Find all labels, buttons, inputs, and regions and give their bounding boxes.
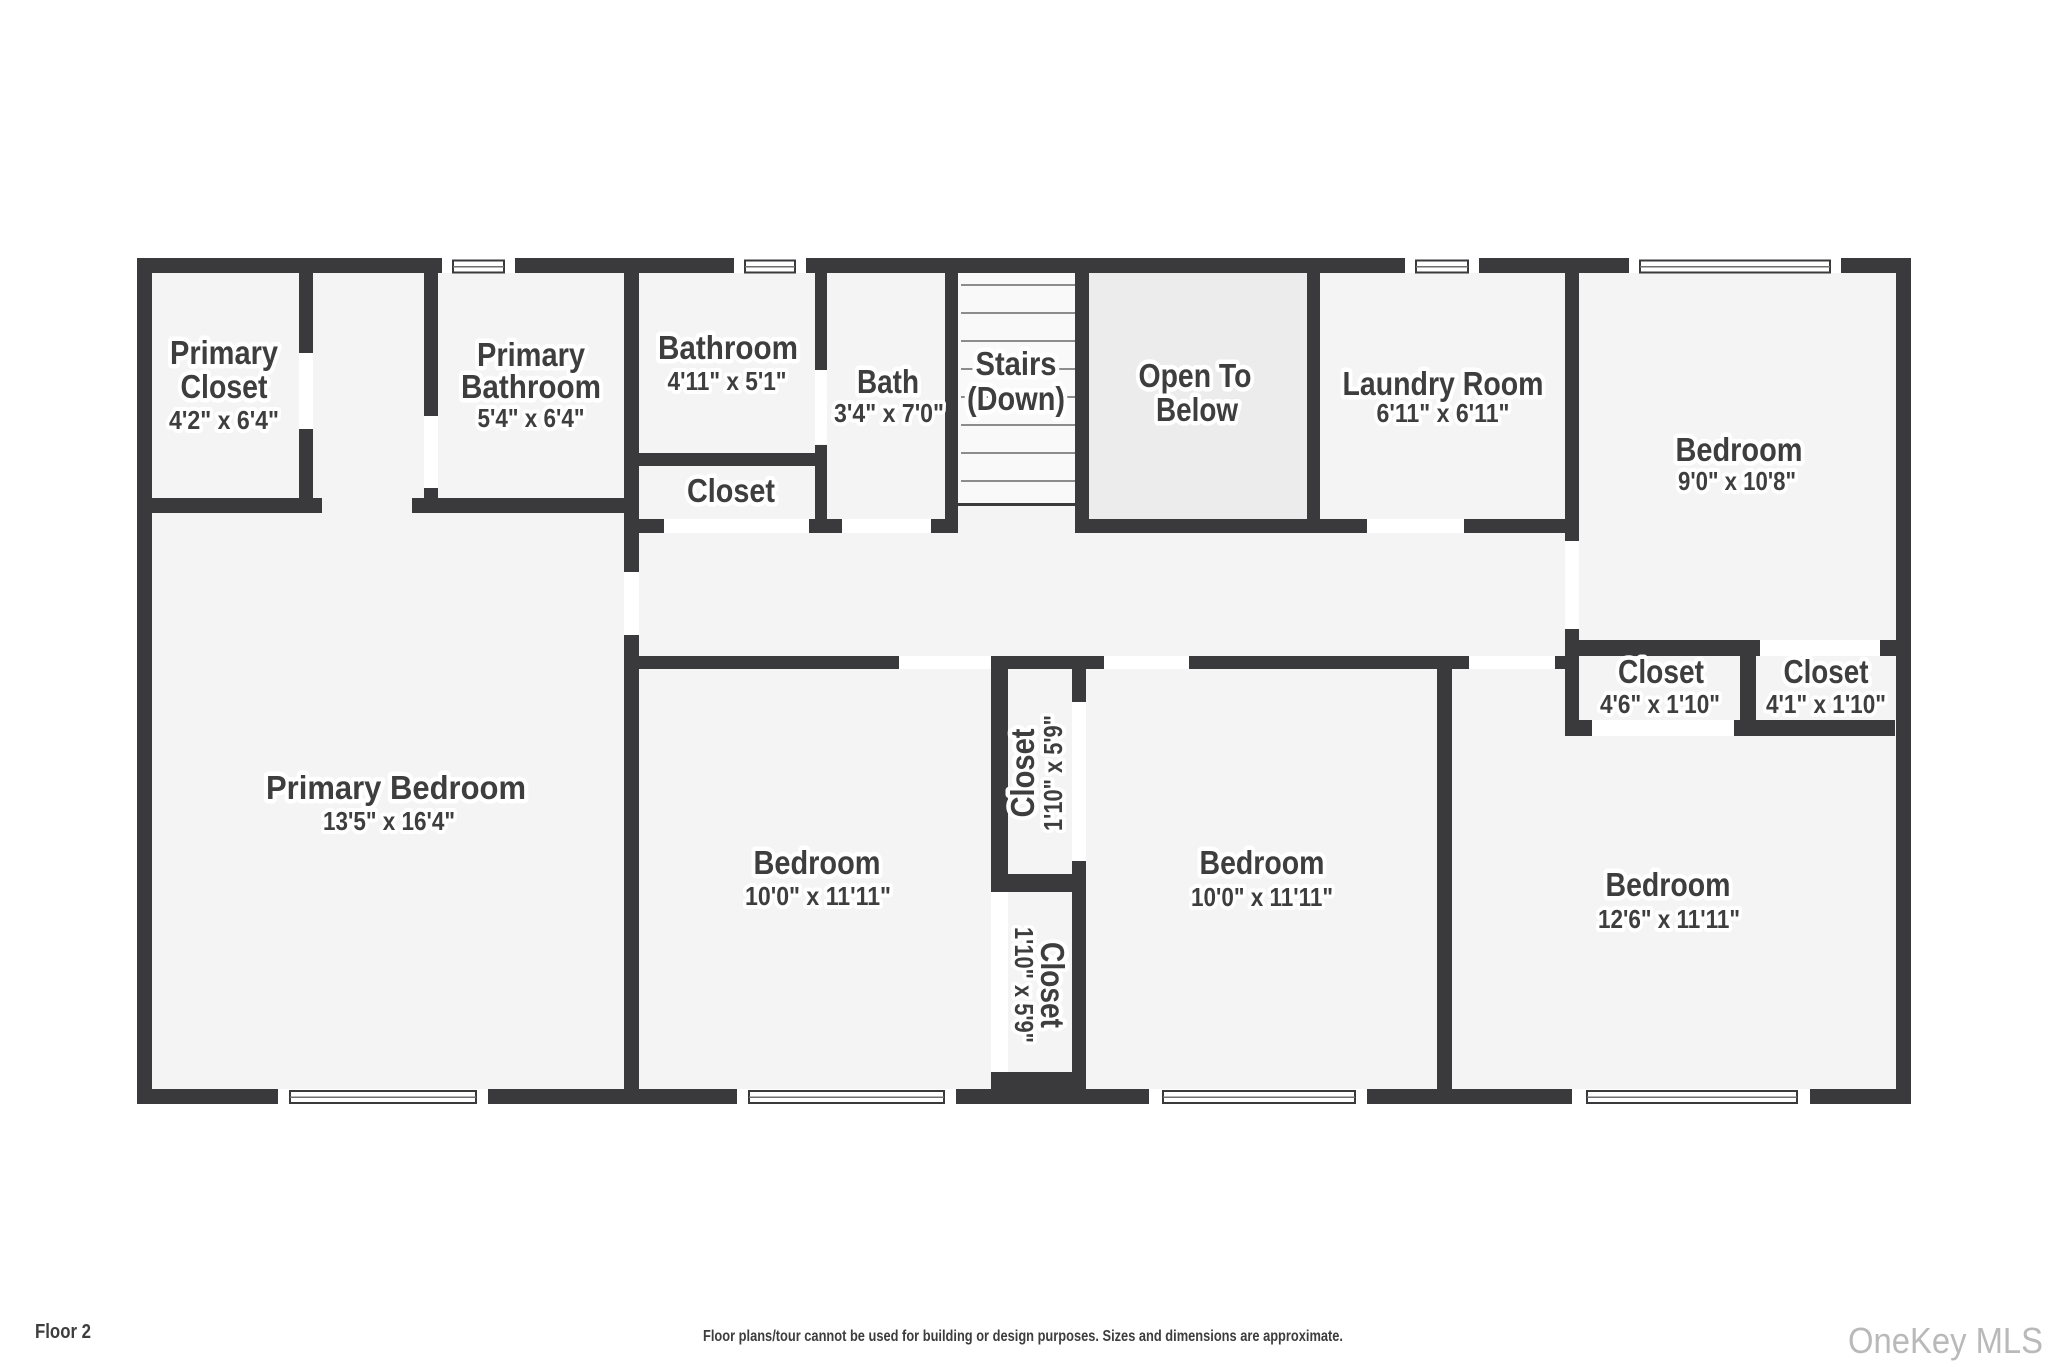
svg-text:4'6" x 1'10": 4'6" x 1'10" — [1600, 689, 1720, 719]
svg-text:10'0" x 11'11": 10'0" x 11'11" — [1191, 882, 1333, 912]
svg-text:13'5" x 16'4": 13'5" x 16'4" — [323, 806, 455, 836]
svg-text:Closet: Closet — [181, 368, 268, 405]
svg-text:Bedroom: Bedroom — [1200, 844, 1325, 881]
svg-text:Floor 2: Floor 2 — [35, 1321, 91, 1343]
svg-text:Below: Below — [1156, 391, 1238, 428]
svg-text:Closet: Closet — [1784, 653, 1869, 690]
svg-text:Laundry Room: Laundry Room — [1343, 365, 1544, 402]
svg-text:Closet: Closet — [1618, 653, 1704, 690]
svg-text:Bathroom: Bathroom — [461, 368, 601, 405]
svg-text:Closet: Closet — [687, 472, 775, 509]
svg-text:5'4" x 6'4": 5'4" x 6'4" — [478, 403, 585, 433]
svg-text:Primary Bedroom: Primary Bedroom — [266, 769, 526, 806]
svg-text:Floor plans/tour cannot be use: Floor plans/tour cannot be used for buil… — [703, 1328, 1343, 1345]
svg-text:Bath: Bath — [857, 363, 919, 400]
svg-text:9'0" x 10'8": 9'0" x 10'8" — [1678, 466, 1796, 496]
svg-text:1'10" x 5'9": 1'10" x 5'9" — [1038, 715, 1068, 831]
svg-text:Closet: Closet — [1004, 728, 1041, 817]
svg-text:10'0" x 11'11": 10'0" x 11'11" — [745, 881, 891, 911]
svg-text:Bathroom: Bathroom — [658, 329, 798, 366]
svg-text:1'10" x 5'9": 1'10" x 5'9" — [1009, 927, 1039, 1043]
svg-text:3'4" x 7'0": 3'4" x 7'0" — [834, 398, 944, 428]
svg-text:(Down): (Down) — [967, 380, 1065, 417]
svg-text:Bedroom: Bedroom — [1676, 431, 1803, 468]
svg-text:Open To: Open To — [1139, 357, 1252, 394]
svg-text:OneKey MLS: OneKey MLS — [1848, 1320, 2043, 1361]
svg-text:Bedroom: Bedroom — [754, 844, 881, 881]
svg-text:Stairs: Stairs — [976, 345, 1057, 382]
svg-text:Primary: Primary — [170, 334, 279, 371]
svg-text:6'11" x 6'11": 6'11" x 6'11" — [1377, 398, 1510, 428]
svg-text:4'1" x 1'10": 4'1" x 1'10" — [1766, 689, 1886, 719]
svg-text:Bedroom: Bedroom — [1606, 866, 1731, 903]
svg-text:4'11" x 5'1": 4'11" x 5'1" — [668, 366, 787, 396]
svg-text:12'6" x 11'11": 12'6" x 11'11" — [1598, 904, 1740, 934]
svg-text:4'2" x 6'4": 4'2" x 6'4" — [169, 405, 279, 435]
